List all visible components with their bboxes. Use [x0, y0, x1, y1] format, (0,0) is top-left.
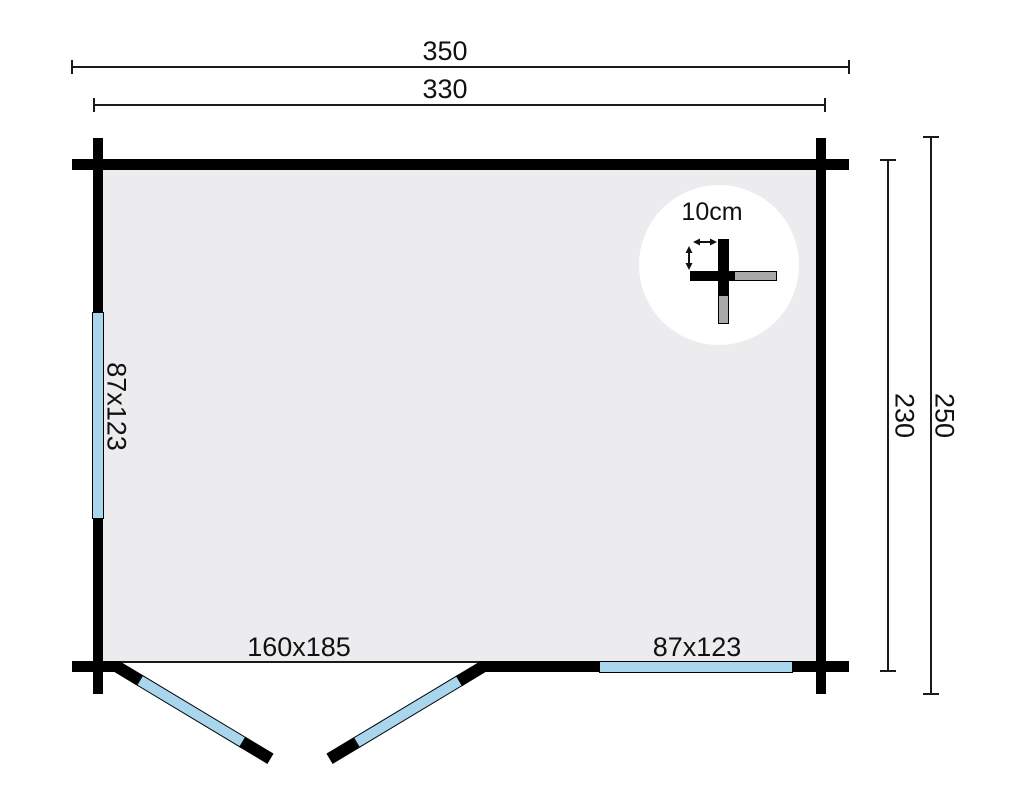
wall-top: [72, 159, 849, 170]
door-leaf-right: [326, 662, 485, 764]
wall-bottom-left-segment: [72, 661, 121, 672]
dim-top-inner-line: [94, 104, 825, 106]
wall-bottom-middle-segment: [479, 661, 600, 672]
dim-top-outer-label: 350: [375, 38, 515, 65]
dim-tick: [93, 98, 95, 112]
dim-tick: [880, 670, 896, 672]
door-edge-cap: [239, 737, 273, 764]
window-bottom: [599, 661, 793, 673]
dim-tick: [923, 136, 939, 138]
door-leaf-left: [115, 662, 274, 764]
dim-tick: [848, 60, 850, 74]
dim-right-outer-label: 250: [931, 346, 958, 486]
dim-right-inner-label: 230: [891, 346, 918, 486]
dim-tick: [923, 693, 939, 695]
door-panel: [353, 675, 464, 748]
door-hinge-cap: [456, 662, 485, 686]
door-panel: [136, 675, 247, 748]
wall-bottom-right-segment: [792, 661, 849, 672]
window-left-label: 87x123: [103, 337, 130, 477]
double-arrow-vertical-icon: [686, 246, 693, 270]
dim-top-inner-label: 330: [375, 76, 515, 103]
door-label: 160x185: [229, 634, 369, 661]
dim-tick: [880, 159, 896, 161]
wall-right: [816, 138, 826, 694]
dim-tick: [824, 98, 826, 112]
dim-tick: [71, 60, 73, 74]
detail-arrows: [639, 185, 799, 345]
double-arrow-horizontal-icon: [693, 239, 717, 246]
floor-plan: 350 330 230 250 87x123 87x123 160x185 1: [0, 0, 1030, 800]
wall-left-upper-segment: [93, 138, 103, 313]
window-bottom-label: 87x123: [627, 634, 767, 661]
wall-detail-bubble: 10cm: [639, 185, 799, 345]
dim-top-outer-line: [72, 66, 849, 68]
